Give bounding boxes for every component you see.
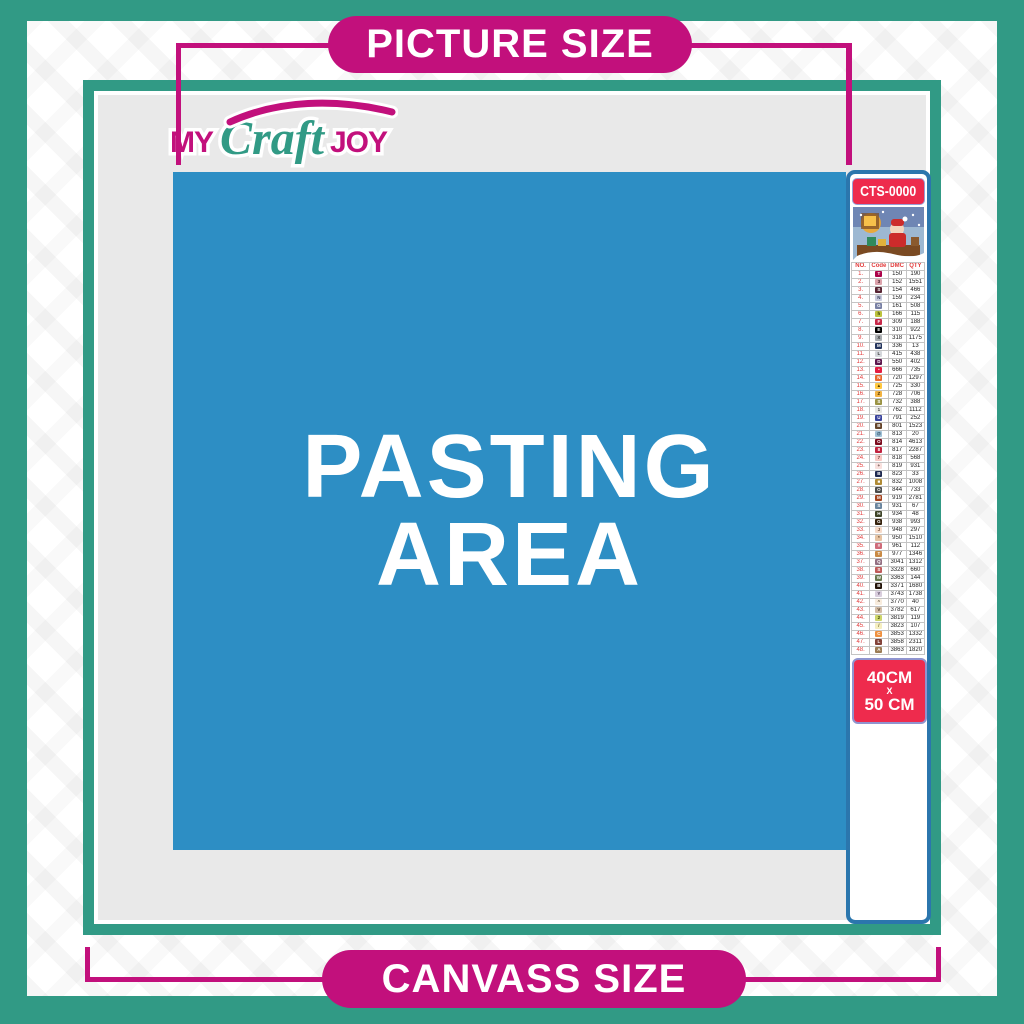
row-number: 15. [852,383,870,391]
pasting-area-line1: PASTING [302,423,716,511]
code-cell: @ [870,431,888,439]
row-number: 26. [852,471,870,479]
quantity-value: 508 [906,303,924,311]
dmc-number: 938 [888,519,906,527]
color-code-swatch: B [875,471,882,477]
dmc-column-header: DMC [888,263,906,271]
quantity-value: 735 [906,367,924,375]
color-code-swatch: S [875,567,882,573]
dmc-number: 977 [888,551,906,559]
quantity-value: 617 [906,607,924,615]
pasting-area-line2: AREA [376,511,643,599]
picture-size-banner: PICTURE SIZE [328,16,692,73]
code-cell: ▲ [870,383,888,391]
row-number: 27. [852,479,870,487]
quantity-value: 115 [906,311,924,319]
row-number: 3. [852,287,870,295]
color-code-swatch: 1 [875,407,882,413]
color-code-swatch: M [875,343,882,349]
dmc-color-row: 44.23819119 [852,615,925,623]
code-cell: S [870,287,888,295]
quantity-value: 2287 [906,447,924,455]
dmc-number: 814 [888,439,906,447]
row-number: 13. [852,367,870,375]
quantity-value: 190 [906,271,924,279]
code-cell: D [870,359,888,367]
row-number: 2. [852,279,870,287]
quantity-value: 568 [906,455,924,463]
dmc-color-row: 34.*9501510 [852,535,925,543]
dmc-color-row: 41.Y37431738 [852,591,925,599]
code-cell: M [870,343,888,351]
dmc-number: 931 [888,503,906,511]
code-cell: T [870,271,888,279]
color-code-swatch: O [875,439,882,445]
dmc-color-row: 46.C38531332 [852,631,925,639]
quantity-value: 1820 [906,647,924,655]
code-cell: * [870,535,888,543]
color-table-body: 1.T1501902.315215513.S1544664.N1592345.G… [852,271,925,655]
quantity-value: 13 [906,343,924,351]
dmc-number: 3328 [888,567,906,575]
row-number: 6. [852,311,870,319]
row-number: 29. [852,495,870,503]
dmc-number: 310 [888,327,906,335]
color-code-swatch: M [875,495,882,501]
dmc-number: 844 [888,487,906,495]
code-cell: H [870,511,888,519]
code-cell: U [870,415,888,423]
row-number: 46. [852,631,870,639]
quantity-value: 188 [906,319,924,327]
code-cell: B [870,471,888,479]
dmc-color-row: 48.A38631820 [852,647,925,655]
row-number: 40. [852,583,870,591]
color-code-swatch: S [875,503,882,509]
dmc-color-row: 7.F309188 [852,319,925,327]
dmc-color-table: NO.CodeDMCQTY 1.T1501902.315215513.S1544… [851,262,925,655]
dmc-number: 159 [888,295,906,303]
quantity-value: 1346 [906,551,924,559]
row-number: 35. [852,543,870,551]
color-code-swatch: # [875,543,882,549]
quantity-value: 330 [906,383,924,391]
row-number: 34. [852,535,870,543]
dmc-number: 318 [888,335,906,343]
quantity-value: 402 [906,359,924,367]
dmc-number: 3853 [888,631,906,639]
dmc-number: 934 [888,511,906,519]
product-code-text: CTS-0000 [860,183,916,200]
dmc-color-row: 20.B8011523 [852,423,925,431]
quantity-value: 119 [906,615,924,623]
row-number: 42. [852,599,870,607]
dmc-number: 3858 [888,639,906,647]
dmc-color-row: 24.7818568 [852,455,925,463]
dmc-number: 948 [888,527,906,535]
dmc-color-row: 42.^377040 [852,599,925,607]
code-cell: T [870,551,888,559]
dmc-color-row: 12.D550402 [852,359,925,367]
dmc-number: 919 [888,495,906,503]
quantity-value: 660 [906,567,924,575]
dmc-color-row: 28.O844733 [852,487,925,495]
row-number: 4. [852,295,870,303]
code-cell: F [870,319,888,327]
color-code-swatch: G [875,519,882,525]
dmc-number: 3782 [888,607,906,615]
dmc-color-row: 5.G161508 [852,303,925,311]
quantity-value: 252 [906,415,924,423]
dmc-number: 3743 [888,591,906,599]
color-code-swatch: L [875,351,882,357]
quantity-value: 922 [906,327,924,335]
color-code-swatch: A [875,647,882,653]
dmc-color-row: 16.Z728706 [852,391,925,399]
color-code-swatch: B [875,583,882,589]
row-number: 22. [852,439,870,447]
dmc-number: 818 [888,455,906,463]
dmc-number: 720 [888,375,906,383]
row-number: 7. [852,319,870,327]
row-number: 44. [852,615,870,623]
code-cell: J [870,527,888,535]
dmc-color-row: 8.E310922 [852,327,925,335]
dmc-color-row: 3.S154466 [852,287,925,295]
size-width-text: 40CM [867,669,912,687]
dmc-color-row: 14.N7201297 [852,375,925,383]
code-cell: L [870,639,888,647]
dmc-number: 762 [888,407,906,415]
color-code-swatch: h [875,311,882,317]
picture-size-tick-right [846,43,852,165]
color-code-swatch: 3 [875,279,882,285]
quantity-value: 1112 [906,407,924,415]
canvas-size-tick-right [936,947,941,982]
code-cell: S [870,567,888,575]
row-number: 47. [852,639,870,647]
color-code-swatch: G [875,303,882,309]
dmc-color-row: 39.W3363144 [852,575,925,583]
row-number: 25. [852,463,870,471]
row-number: 11. [852,351,870,359]
code-cell: # [870,543,888,551]
color-code-swatch: J [875,527,882,533]
dmc-color-row: 40.B33711680 [852,583,925,591]
code-cell: • [870,367,888,375]
row-number: 33. [852,527,870,535]
color-code-swatch: F [875,319,882,325]
infographic-canvas: PASTING AREA MY Craft JOY CTS-0000 [0,0,1024,1024]
row-number: 19. [852,415,870,423]
code-cell: Y [870,591,888,599]
dmc-color-row: 38.S3328660 [852,567,925,575]
code-cell: Q [870,559,888,567]
code-cell: M [870,495,888,503]
quantity-value: 1551 [906,279,924,287]
color-code-swatch: B [875,423,882,429]
code-cell: 3 [870,279,888,287]
quantity-value: 1312 [906,559,924,567]
quantity-value: 1680 [906,583,924,591]
color-code-swatch: + [875,463,882,469]
picture-size-banner-text: PICTURE SIZE [366,22,654,67]
pasting-area: PASTING AREA [173,172,846,850]
dmc-number: 832 [888,479,906,487]
code-cell: + [870,463,888,471]
code-cell: C [870,631,888,639]
dmc-number: 813 [888,431,906,439]
row-number: 16. [852,391,870,399]
color-code-swatch: T [875,271,882,277]
color-code-swatch: ■ [875,479,882,485]
code-cell: / [870,623,888,631]
quantity-value: 1332 [906,631,924,639]
dmc-number: 3041 [888,559,906,567]
dmc-number: 961 [888,543,906,551]
row-number: 45. [852,623,870,631]
dmc-color-row: 21.@81320 [852,431,925,439]
quantity-value: 438 [906,351,924,359]
row-number: 24. [852,455,870,463]
dmc-color-row: 9.X3181175 [852,335,925,343]
dmc-number: 3363 [888,575,906,583]
row-number: 8. [852,327,870,335]
color-code-swatch: S [875,399,882,405]
dmc-number: 666 [888,367,906,375]
quantity-value: 112 [906,543,924,551]
product-code-badge: CTS-0000 [852,178,925,205]
canvass-size-banner: CANVASS SIZE [322,950,746,1008]
row-number: 32. [852,519,870,527]
row-number: 5. [852,303,870,311]
color-code-swatch: • [875,367,882,373]
dmc-column-header: QTY [906,263,924,271]
code-cell: B [870,583,888,591]
dmc-number: 336 [888,343,906,351]
row-number: 39. [852,575,870,583]
code-cell: 2 [870,615,888,623]
brand-logo: MY Craft JOY [168,92,398,172]
dmc-color-row: 10.M33613 [852,343,925,351]
dmc-number: 732 [888,399,906,407]
dmc-color-row: 19.U791252 [852,415,925,423]
code-cell: B [870,423,888,431]
row-number: 41. [852,591,870,599]
color-code-swatch: N [875,375,882,381]
quantity-value: 144 [906,575,924,583]
dmc-column-header: NO. [852,263,870,271]
dmc-number: 791 [888,415,906,423]
dmc-color-row: 6.h166115 [852,311,925,319]
code-cell: Z [870,391,888,399]
dmc-color-row: 18.17621112 [852,407,925,415]
color-code-swatch: * [875,535,882,541]
quantity-value: 2311 [906,639,924,647]
code-cell: E [870,327,888,335]
quantity-value: 466 [906,287,924,295]
dmc-color-row: 47.L38582311 [852,639,925,647]
code-cell: 8 [870,447,888,455]
color-code-swatch: Y [875,591,882,597]
dmc-color-row: 1.T150190 [852,271,925,279]
row-number: 20. [852,423,870,431]
color-code-swatch: T [875,551,882,557]
code-cell: V [870,607,888,615]
quantity-value: 1523 [906,423,924,431]
quantity-value: 33 [906,471,924,479]
color-code-swatch: 8 [875,447,882,453]
size-height-text: 50 CM [864,696,914,714]
color-code-swatch: W [875,575,882,581]
quantity-value: 2781 [906,495,924,503]
row-number: 28. [852,487,870,495]
color-code-swatch: S [875,287,882,293]
dmc-color-row: 32.G938993 [852,519,925,527]
color-code-swatch: U [875,415,882,421]
dmc-number: 3371 [888,583,906,591]
quantity-value: 1510 [906,535,924,543]
row-number: 10. [852,343,870,351]
quantity-value: 706 [906,391,924,399]
color-code-swatch: C [875,631,882,637]
row-number: 17. [852,399,870,407]
dmc-color-row: 45./3823107 [852,623,925,631]
row-number: 36. [852,551,870,559]
color-code-swatch: @ [875,431,882,437]
color-code-swatch: H [875,511,882,517]
color-code-swatch: / [875,623,882,629]
color-code-swatch: E [875,327,882,333]
dmc-column-header: Code [870,263,888,271]
code-cell: O [870,439,888,447]
row-number: 30. [852,503,870,511]
dmc-number: 823 [888,471,906,479]
code-cell: O [870,487,888,495]
code-cell: N [870,375,888,383]
brand-logo-art: MY Craft JOY [168,92,398,172]
canvas-size-badge: 40CM X 50 CM [852,658,927,724]
dmc-number: 166 [888,311,906,319]
dmc-color-row: 35.#961112 [852,543,925,551]
dmc-number: 550 [888,359,906,367]
dmc-number: 950 [888,535,906,543]
code-cell: A [870,647,888,655]
canvas-size-line-right [740,977,941,982]
row-number: 9. [852,335,870,343]
quantity-value: 4613 [906,439,924,447]
code-cell: h [870,311,888,319]
code-cell: G [870,303,888,311]
dmc-color-row: 30.S93167 [852,503,925,511]
code-cell: X [870,335,888,343]
row-number: 23. [852,447,870,455]
color-code-swatch: ▲ [875,383,882,389]
color-code-swatch: 2 [875,615,882,621]
color-code-swatch: L [875,639,882,645]
row-number: 37. [852,559,870,567]
dmc-color-row: 13.•666735 [852,367,925,375]
color-code-swatch: V [875,607,882,613]
picture-size-tick-left [176,43,181,165]
dmc-number: 3823 [888,623,906,631]
quantity-value: 1738 [906,591,924,599]
quantity-value: 234 [906,295,924,303]
code-cell: G [870,519,888,527]
quantity-value: 40 [906,599,924,607]
dmc-color-row: 27.■8321008 [852,479,925,487]
dmc-color-row: 17.S732388 [852,399,925,407]
quantity-value: 67 [906,503,924,511]
dmc-number: 415 [888,351,906,359]
dmc-number: 152 [888,279,906,287]
color-code-swatch: Z [875,391,882,397]
quantity-value: 297 [906,527,924,535]
dmc-color-row: 43.V3782617 [852,607,925,615]
dmc-number: 801 [888,423,906,431]
picture-size-line-left [176,43,333,48]
picture-size-line-right [688,43,852,48]
dmc-color-row: 15.▲725330 [852,383,925,391]
row-number: 12. [852,359,870,367]
code-cell: W [870,575,888,583]
code-cell: ^ [870,599,888,607]
row-number: 38. [852,567,870,575]
color-code-swatch: 7 [875,455,882,461]
dmc-color-row: 4.N159234 [852,295,925,303]
color-code-swatch: ^ [875,599,882,605]
dmc-number: 161 [888,303,906,311]
dmc-table-header-row: NO.CodeDMCQTY [852,263,925,271]
code-cell: N [870,295,888,303]
code-cell: 7 [870,455,888,463]
dmc-number: 819 [888,463,906,471]
quantity-value: 48 [906,511,924,519]
row-number: 43. [852,607,870,615]
dmc-number: 725 [888,383,906,391]
row-number: 14. [852,375,870,383]
row-number: 31. [852,511,870,519]
dmc-color-row: 2.31521551 [852,279,925,287]
product-info-strip: CTS-0000 NO.CodeDMCQTY 1.T1501902.315215… [846,170,931,924]
row-number: 21. [852,431,870,439]
dmc-number: 3863 [888,647,906,655]
code-cell: ■ [870,479,888,487]
dmc-number: 817 [888,447,906,455]
dmc-color-row: 29.M9192781 [852,495,925,503]
code-cell: S [870,503,888,511]
canvass-size-banner-text: CANVASS SIZE [382,957,687,1002]
dmc-color-row: 23.88172287 [852,447,925,455]
logo-word-joy: JOY [330,126,388,159]
dmc-color-row: 37.Q30411312 [852,559,925,567]
code-cell: L [870,351,888,359]
quantity-value: 733 [906,487,924,495]
quantity-value: 1297 [906,375,924,383]
dmc-number: 154 [888,287,906,295]
dmc-color-row: 36.T9771346 [852,551,925,559]
dmc-number: 150 [888,271,906,279]
dmc-number: 309 [888,319,906,327]
quantity-value: 20 [906,431,924,439]
dmc-color-row: 25.+819931 [852,463,925,471]
color-code-swatch: D [875,359,882,365]
quantity-value: 1175 [906,335,924,343]
quantity-value: 931 [906,463,924,471]
row-number: 48. [852,647,870,655]
dmc-number: 3770 [888,599,906,607]
code-cell: S [870,399,888,407]
